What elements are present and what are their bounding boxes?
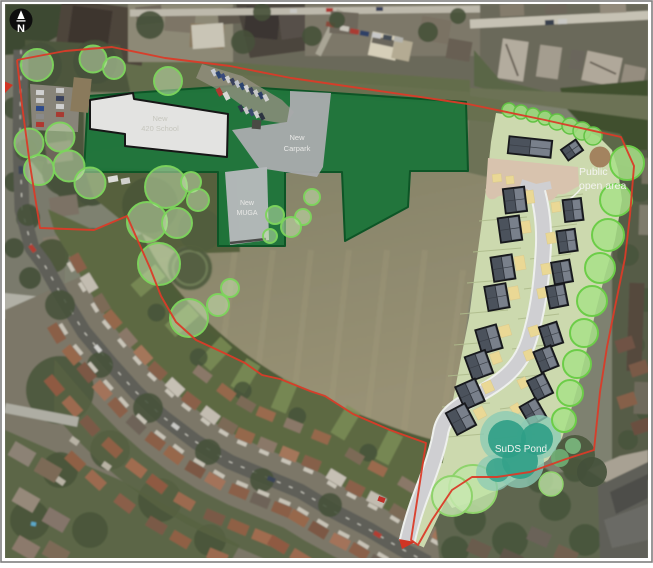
svg-text:MUGA: MUGA: [237, 210, 258, 217]
svg-text:Carpark: Carpark: [284, 144, 311, 153]
svg-text:Public: Public: [579, 166, 608, 178]
svg-text:New: New: [289, 133, 305, 142]
svg-text:New: New: [152, 114, 168, 123]
svg-text:SuDS Pond: SuDS Pond: [495, 444, 547, 455]
svg-text:420 School: 420 School: [141, 124, 179, 133]
svg-text:New: New: [240, 200, 255, 207]
svg-text:N: N: [17, 23, 25, 35]
svg-text:open area: open area: [579, 180, 626, 192]
